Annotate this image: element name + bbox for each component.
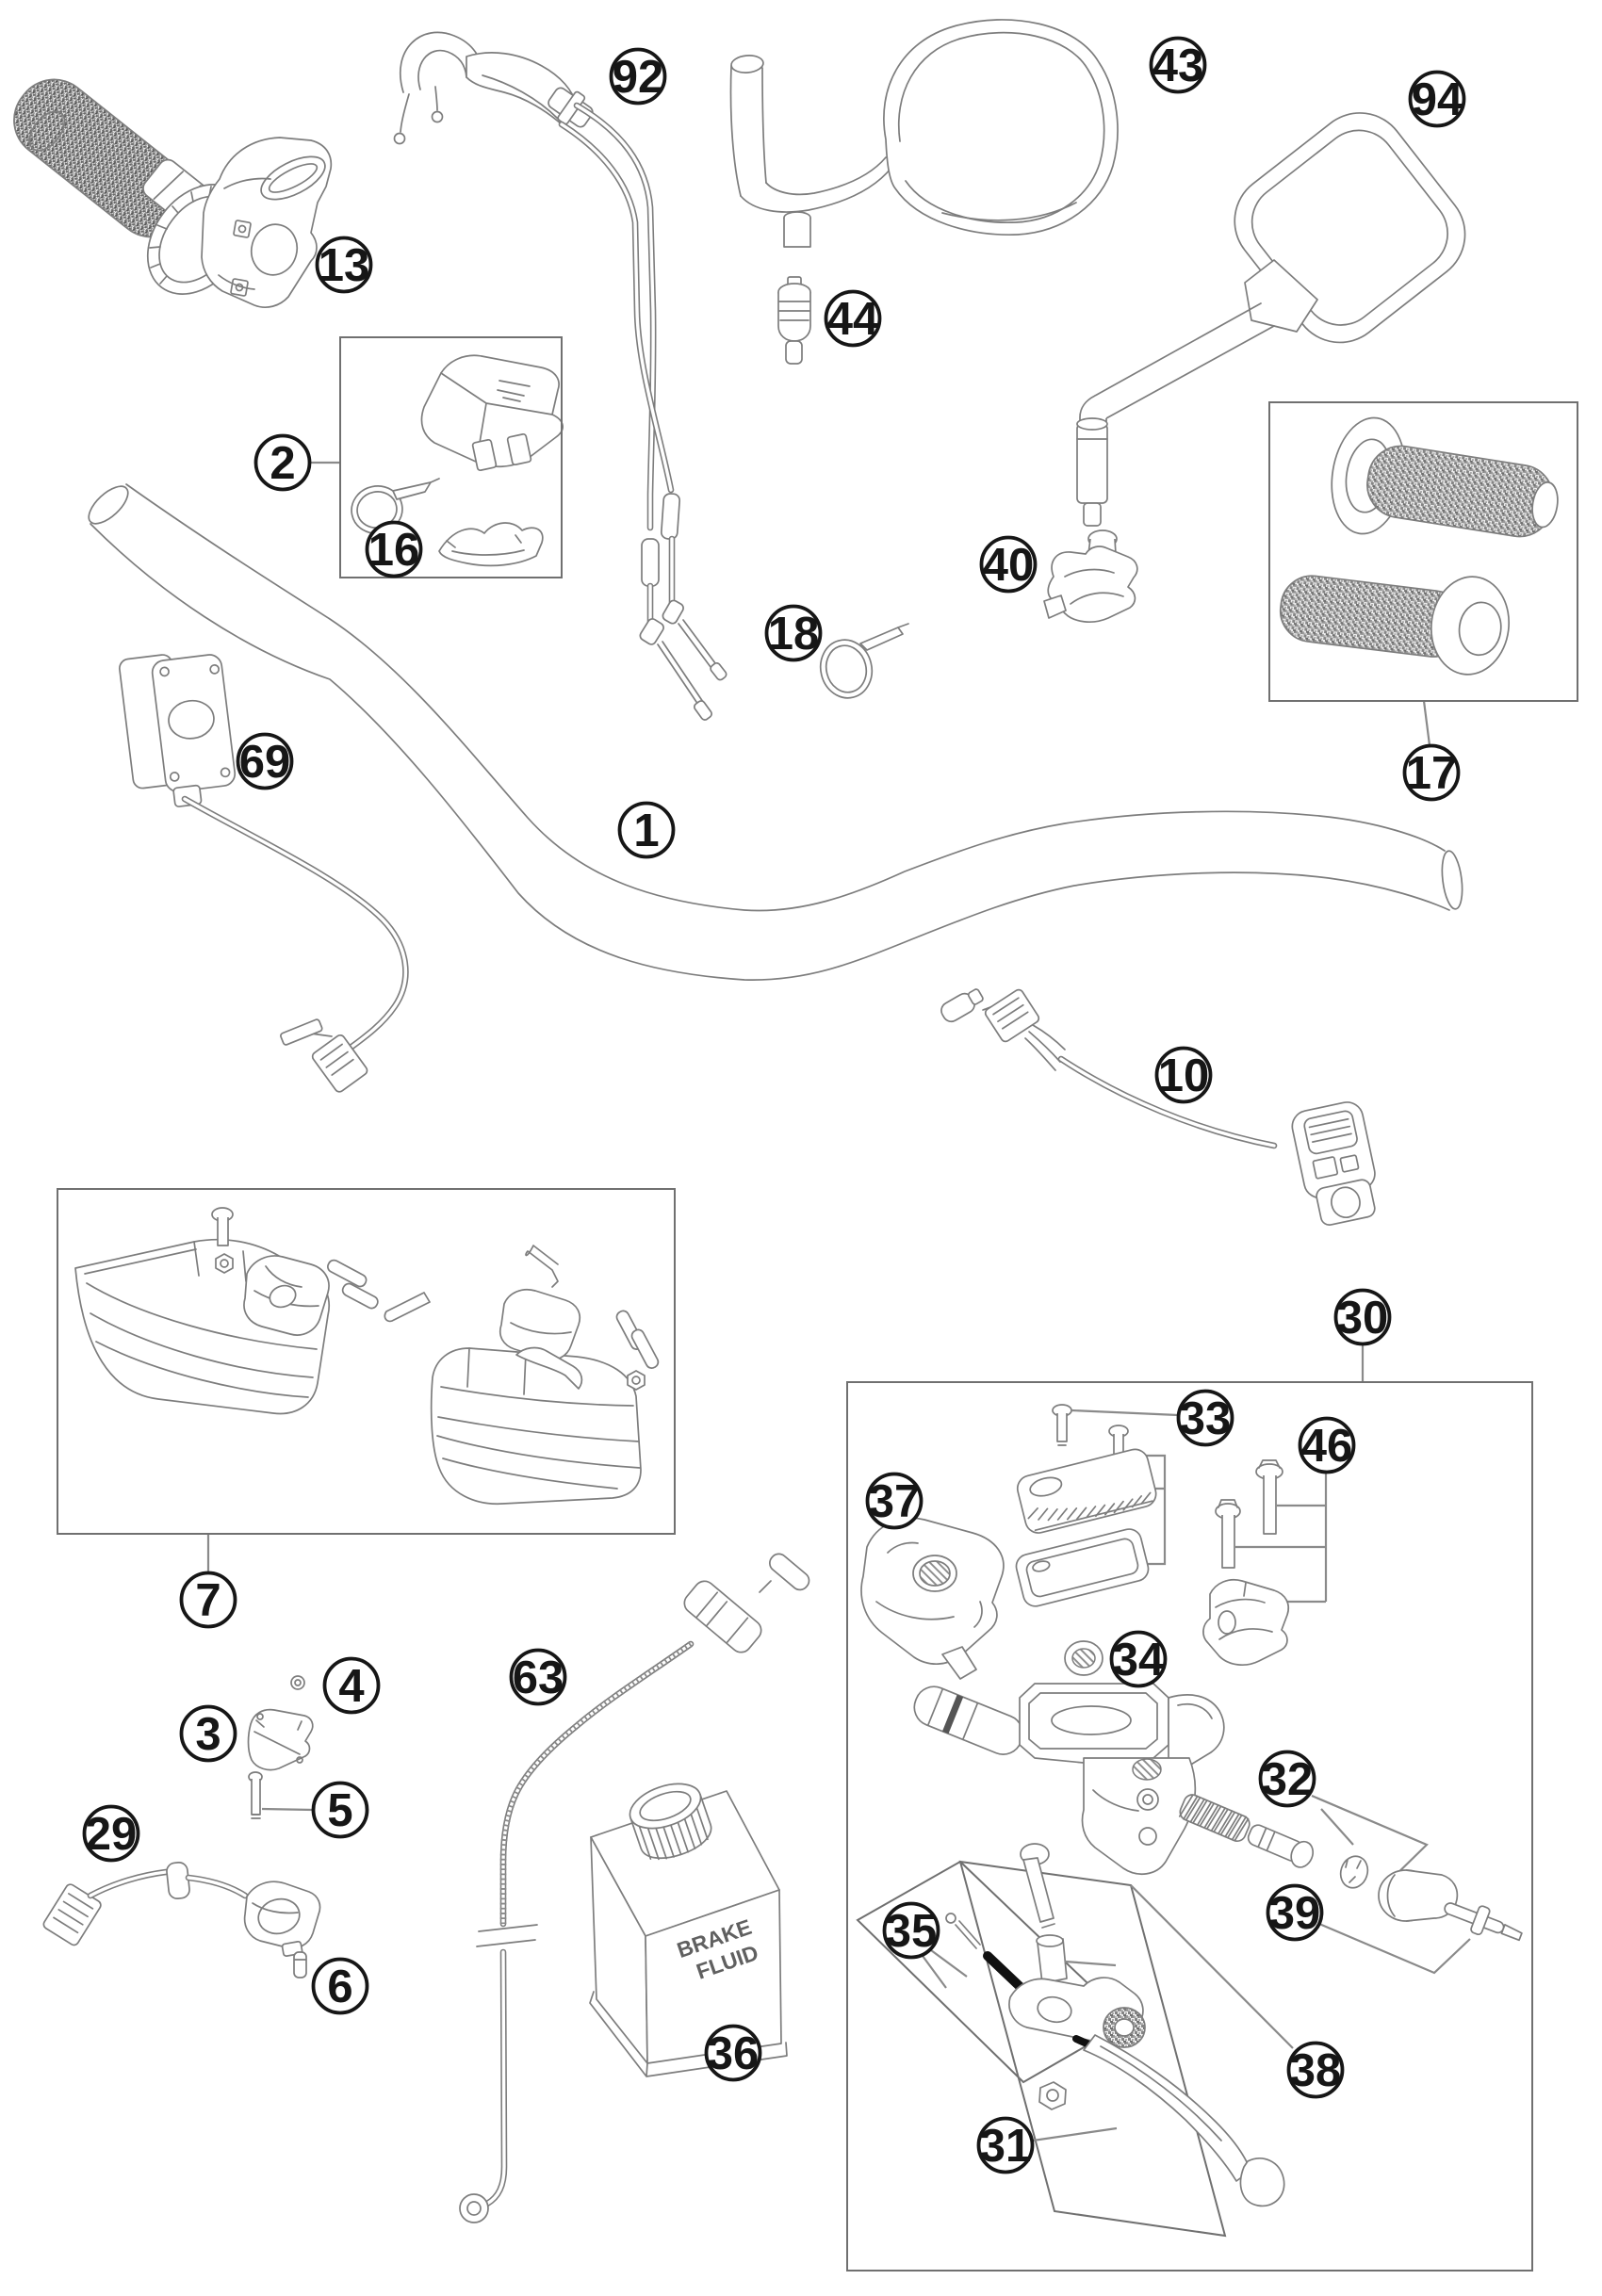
svg-text:44: 44 xyxy=(827,294,879,345)
svg-text:32: 32 xyxy=(1262,1754,1314,1805)
svg-text:31: 31 xyxy=(980,2121,1032,2172)
svg-text:18: 18 xyxy=(768,609,820,659)
svg-text:16: 16 xyxy=(368,525,420,576)
svg-text:37: 37 xyxy=(869,1476,921,1527)
svg-text:17: 17 xyxy=(1406,748,1458,799)
svg-text:46: 46 xyxy=(1301,1421,1353,1472)
svg-text:1: 1 xyxy=(633,806,659,856)
svg-text:39: 39 xyxy=(1269,1888,1321,1939)
svg-text:94: 94 xyxy=(1412,74,1463,125)
svg-text:2: 2 xyxy=(270,438,295,489)
svg-text:35: 35 xyxy=(886,1906,938,1957)
svg-text:69: 69 xyxy=(239,737,291,788)
svg-text:92: 92 xyxy=(613,52,664,103)
svg-text:6: 6 xyxy=(327,1962,352,2012)
svg-text:30: 30 xyxy=(1337,1293,1389,1343)
svg-text:63: 63 xyxy=(513,1653,564,1703)
svg-text:36: 36 xyxy=(708,2028,760,2079)
svg-text:7: 7 xyxy=(195,1575,221,1626)
svg-text:40: 40 xyxy=(983,540,1035,591)
svg-text:13: 13 xyxy=(319,240,370,291)
svg-text:43: 43 xyxy=(1152,41,1204,91)
svg-text:33: 33 xyxy=(1180,1393,1232,1444)
svg-text:5: 5 xyxy=(327,1785,352,1836)
svg-text:38: 38 xyxy=(1290,2045,1342,2096)
svg-text:3: 3 xyxy=(195,1709,221,1760)
svg-text:4: 4 xyxy=(338,1661,364,1712)
svg-text:10: 10 xyxy=(1158,1050,1210,1101)
svg-text:29: 29 xyxy=(86,1809,138,1860)
svg-text:34: 34 xyxy=(1113,1635,1165,1685)
